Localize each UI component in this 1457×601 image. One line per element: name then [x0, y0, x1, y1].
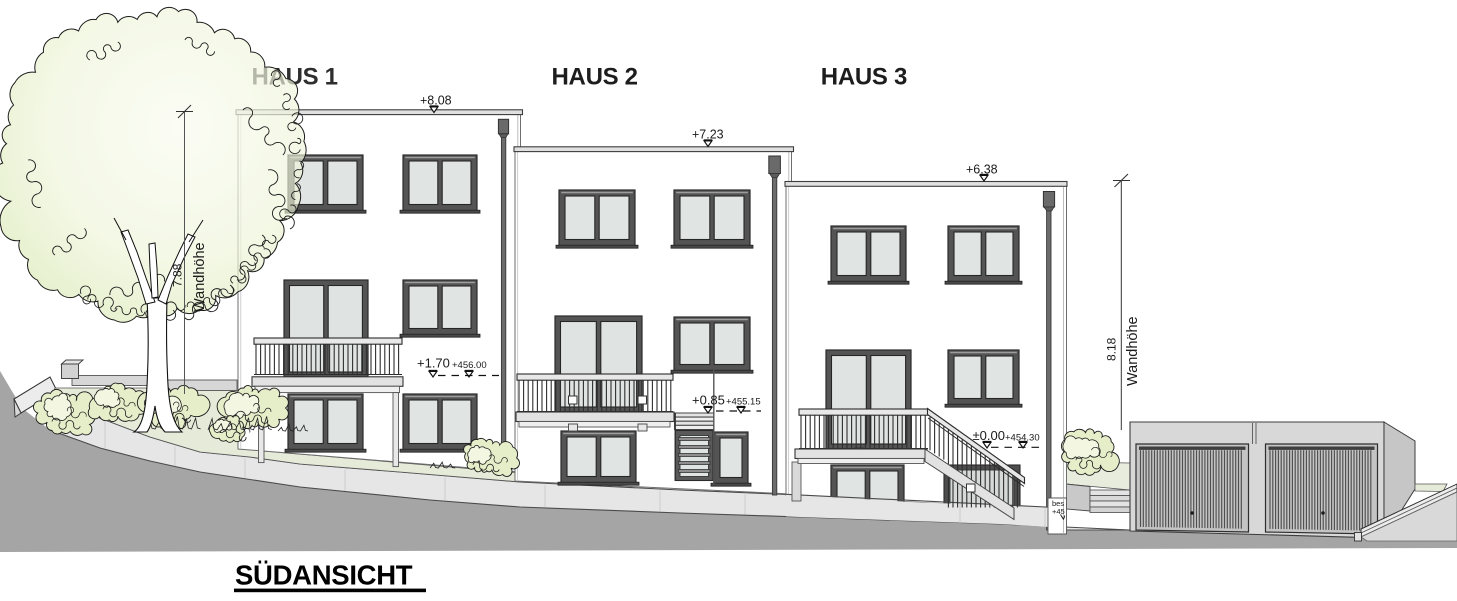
svg-text:7.88: 7.88 [171, 263, 185, 287]
svg-text:±0.00: ±0.00 [973, 428, 1005, 443]
svg-text:HAUS 2: HAUS 2 [552, 63, 638, 90]
svg-text:+456.00: +456.00 [452, 360, 487, 371]
svg-text:Wandhöhe: Wandhöhe [1125, 316, 1141, 386]
svg-text:HAUS 3: HAUS 3 [821, 63, 907, 90]
svg-text:+0.85: +0.85 [692, 393, 725, 408]
svg-text:+1.70: +1.70 [417, 356, 450, 371]
svg-text:+45: +45 [1052, 507, 1065, 516]
svg-text:Wandhöhe: Wandhöhe [192, 242, 208, 312]
svg-text:SÜDANSICHT: SÜDANSICHT [235, 560, 413, 591]
svg-text:8.18: 8.18 [1105, 337, 1119, 361]
